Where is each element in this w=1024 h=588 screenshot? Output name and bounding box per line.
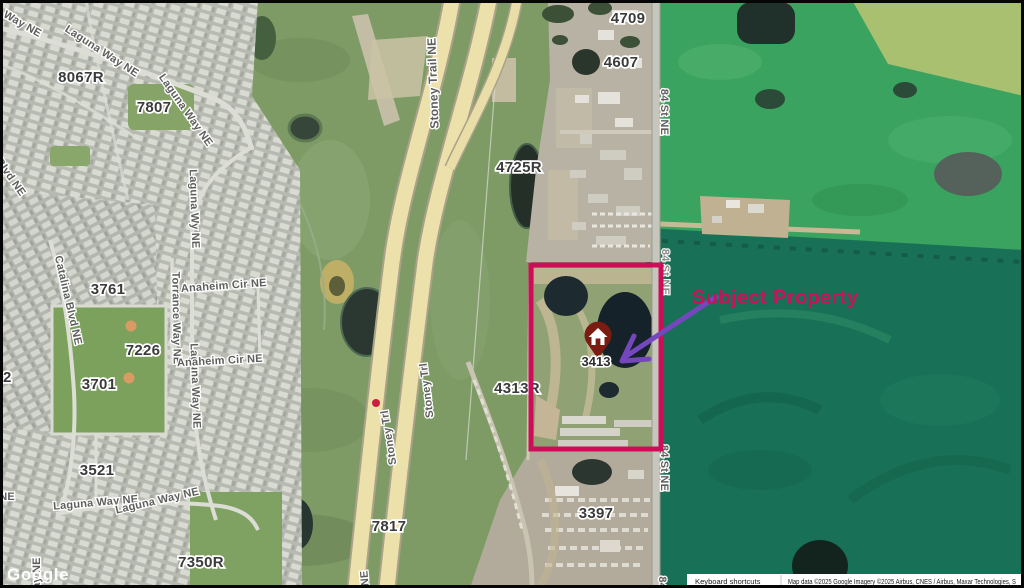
keyboard-shortcuts-button[interactable]: Keyboard shortcuts: [695, 577, 761, 586]
red-dot: [372, 399, 380, 407]
parcel-label-7817: 7817: [372, 518, 407, 535]
street-label-84st-top: 84 St NE: [658, 89, 670, 135]
parcel-label-4709: 4709: [611, 10, 646, 27]
pin-address-label: 3413: [582, 354, 611, 369]
parcel-label-4725r: 4725R: [496, 159, 542, 176]
parcel-label-3761: 3761: [91, 281, 126, 298]
parcel-label-7226: 7226: [126, 342, 161, 359]
parcel-label-8067r: 8067R: [58, 69, 104, 86]
parcel-label-3521: 3521: [80, 462, 115, 479]
parcel-label-4607: 4607: [604, 54, 639, 71]
parcel-label-7350r: 7350R: [178, 554, 224, 571]
parcel-label-3397: 3397: [579, 505, 614, 522]
street-label-84st-low: 84 St NE: [658, 445, 670, 491]
subject-property-title: Subject Property: [692, 287, 859, 309]
parcel-label-7807: 7807: [137, 99, 172, 116]
annotated-satellite-map-screenshot: Laguna Way NE Laguna Way NE Laguna Way N…: [0, 0, 1024, 588]
google-logo[interactable]: Google: [7, 565, 69, 584]
map-data-attribution: Map data ©2025 Google Imagery ©2025 Airb…: [788, 577, 1016, 586]
satellite-map[interactable]: Laguna Way NE Laguna Way NE Laguna Way N…: [0, 0, 1024, 588]
parcel-label-3701: 3701: [82, 376, 117, 393]
street-label-stoney-ne-cut: NE: [358, 570, 371, 587]
